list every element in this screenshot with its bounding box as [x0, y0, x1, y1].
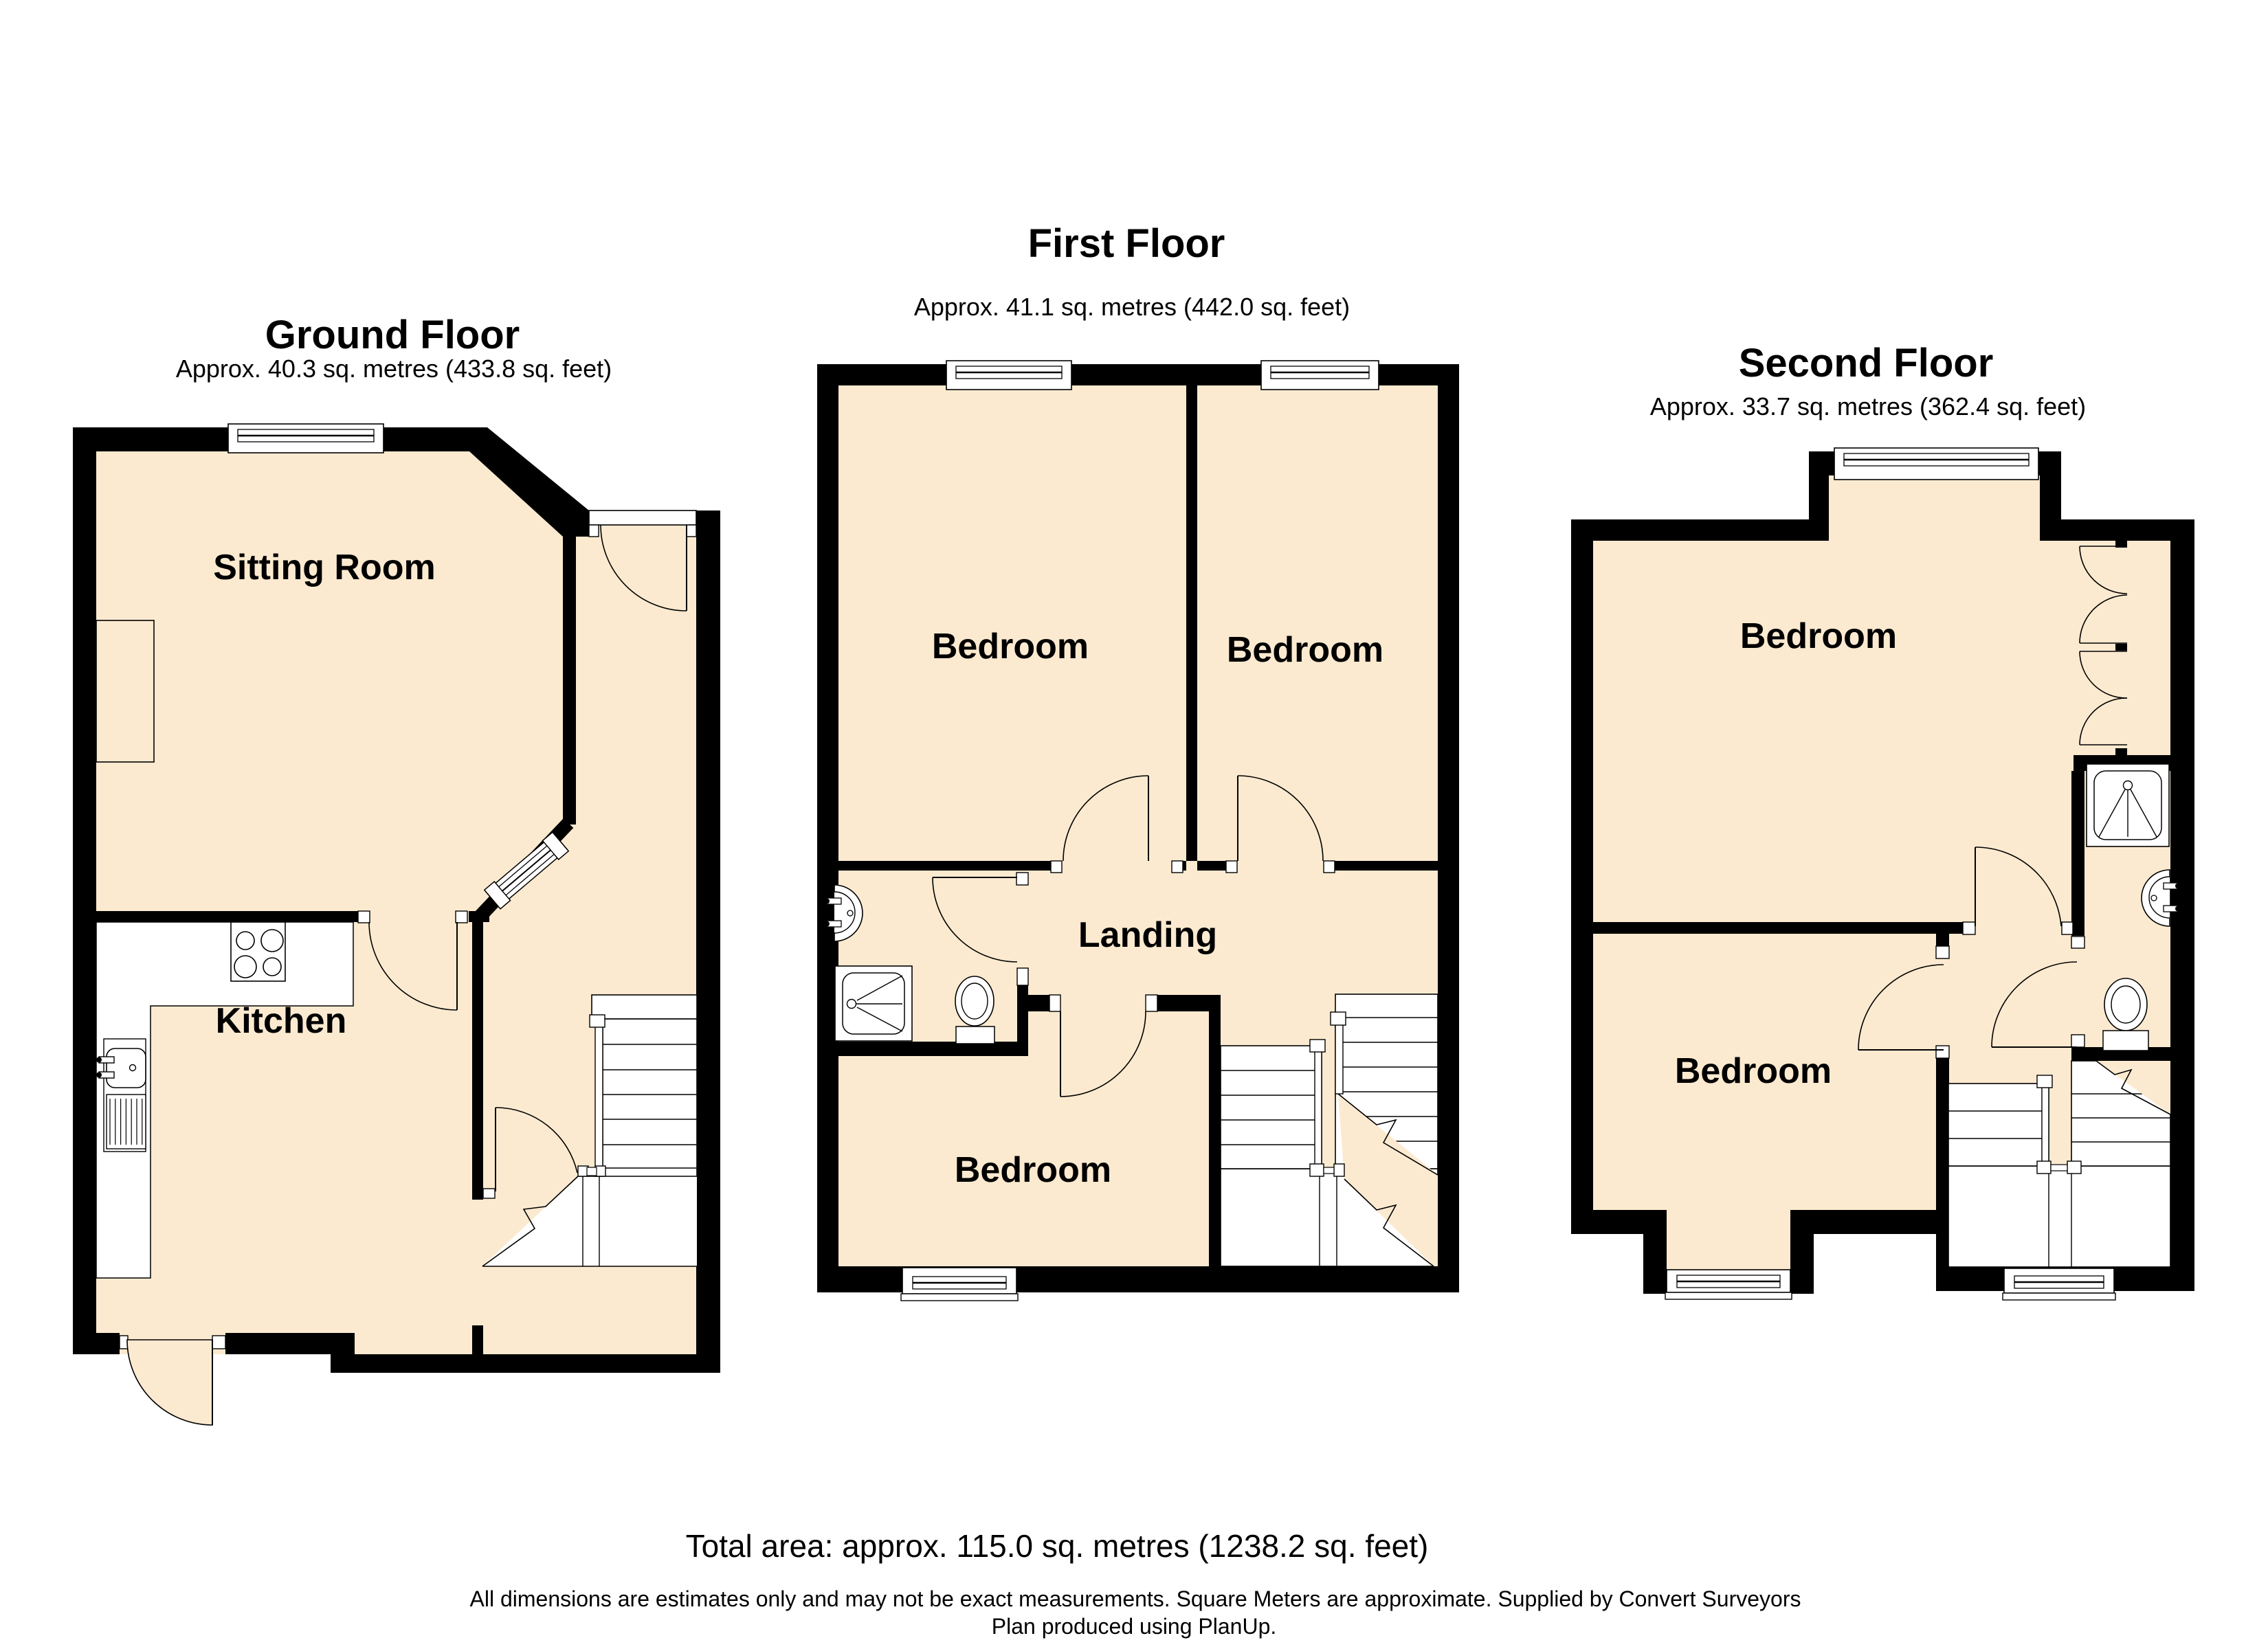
svg-text:Approx. 41.1 sq. metres (442.0: Approx. 41.1 sq. metres (442.0 sq. feet) — [914, 293, 1350, 321]
svg-text:Kitchen: Kitchen — [216, 1001, 347, 1041]
svg-text:Approx. 33.7 sq. metres (362.4: Approx. 33.7 sq. metres (362.4 sq. feet) — [1650, 392, 2086, 420]
svg-text:Landing: Landing — [1078, 915, 1217, 955]
svg-text:Bedroom: Bedroom — [1675, 1051, 1832, 1091]
svg-text:Plan produced using PlanUp.: Plan produced using PlanUp. — [992, 1614, 1277, 1639]
svg-text:Sitting Room: Sitting Room — [213, 548, 436, 587]
svg-text:Bedroom: Bedroom — [1227, 630, 1383, 670]
svg-text:Ground Floor: Ground Floor — [265, 313, 520, 357]
svg-text:Total area: approx. 115.0 sq.: Total area: approx. 115.0 sq. metres (12… — [686, 1528, 1429, 1564]
svg-text:Bedroom: Bedroom — [1740, 616, 1897, 656]
svg-text:Bedroom: Bedroom — [932, 627, 1089, 666]
svg-text:All dimensions are estimates o: All dimensions are estimates only and ma… — [470, 1586, 1801, 1611]
svg-text:Second Floor: Second Floor — [1739, 341, 1994, 385]
svg-text:Bedroom: Bedroom — [955, 1150, 1111, 1190]
svg-text:First Floor: First Floor — [1028, 221, 1225, 266]
svg-text:Approx. 40.3 sq. metres (433.8: Approx. 40.3 sq. metres (433.8 sq. feet) — [176, 355, 612, 383]
